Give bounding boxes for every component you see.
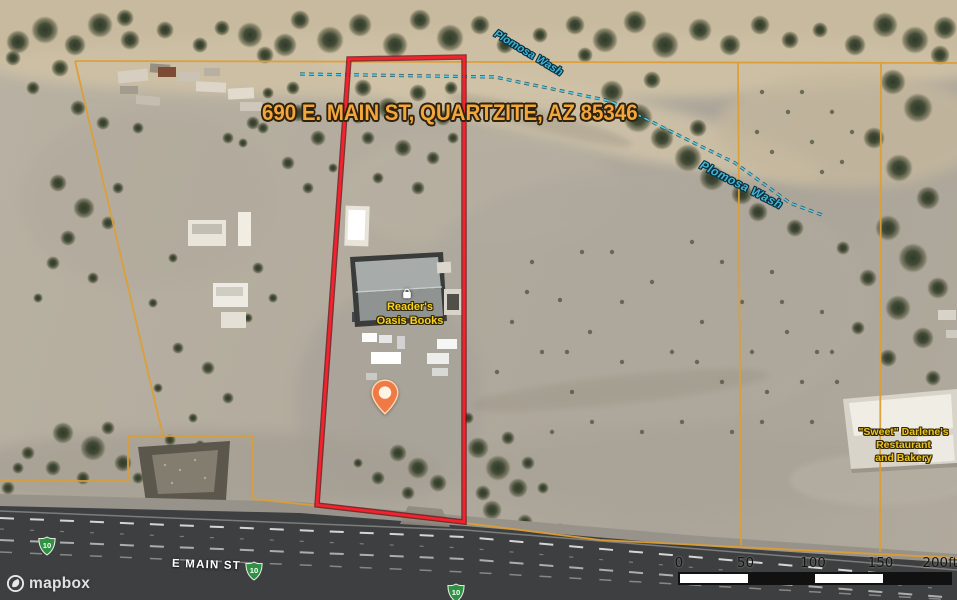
tree — [26, 81, 40, 95]
shrub — [830, 110, 834, 114]
shrub — [820, 310, 824, 314]
location-pin-marker[interactable] — [371, 379, 399, 415]
structure — [196, 81, 226, 93]
restaurant-line2: Restaurant — [851, 439, 956, 452]
gravel-mound — [138, 441, 230, 503]
tree — [281, 156, 295, 170]
tree — [5, 50, 21, 66]
tree — [382, 32, 408, 58]
structure — [437, 339, 457, 349]
tree — [786, 219, 804, 237]
tree — [844, 34, 866, 56]
structure — [371, 352, 401, 364]
structure — [397, 336, 405, 349]
tree — [903, 93, 933, 123]
tree — [252, 262, 264, 274]
tree — [485, 455, 511, 481]
structure — [228, 87, 255, 99]
tree — [6, 30, 30, 54]
tree — [273, 33, 297, 57]
scale-tick-150: 150 — [868, 555, 894, 571]
scale-tick-50: 50 — [737, 555, 754, 571]
tree — [885, 154, 913, 182]
tree — [120, 30, 140, 50]
tree — [444, 81, 458, 95]
shrub — [580, 250, 584, 254]
tree — [238, 138, 248, 148]
structure — [136, 95, 161, 106]
tree — [925, 370, 941, 386]
satellite-map-canvas[interactable] — [0, 0, 957, 600]
route-shield-10-center: 10 — [245, 561, 263, 581]
tree — [80, 435, 106, 461]
shrub — [590, 420, 594, 424]
tree — [930, 45, 950, 65]
shrub — [588, 330, 592, 334]
shrub — [670, 350, 674, 354]
tree — [389, 444, 407, 462]
tree — [872, 12, 898, 38]
shrub — [835, 380, 839, 384]
road-name-label: E MAIN ST — [172, 558, 241, 572]
structure — [427, 353, 449, 364]
shrub — [755, 130, 759, 134]
shrub — [700, 320, 704, 324]
scale-tick-100: 100 — [800, 555, 826, 571]
shrub — [850, 130, 854, 134]
shrub — [495, 370, 499, 374]
tree — [302, 182, 314, 194]
shrub — [770, 270, 774, 274]
shrub — [530, 260, 534, 264]
tree — [912, 327, 934, 349]
tree — [467, 437, 489, 459]
tree — [353, 458, 363, 468]
tree — [623, 10, 647, 34]
structure — [946, 330, 957, 338]
tree — [12, 462, 24, 474]
structure — [120, 86, 138, 94]
tree — [898, 243, 928, 273]
tree — [21, 446, 35, 460]
tree — [222, 132, 234, 144]
shrub — [780, 300, 784, 304]
tree — [201, 361, 215, 375]
structure — [379, 335, 392, 343]
poi-store-line1: Reader's — [364, 300, 456, 314]
tree — [1, 481, 15, 495]
tree — [859, 269, 877, 287]
tree — [436, 24, 464, 52]
tree — [371, 471, 385, 485]
tree — [592, 27, 618, 53]
tree — [409, 9, 431, 31]
tree — [237, 22, 263, 48]
tree — [447, 132, 459, 144]
shrub — [820, 170, 824, 174]
shrub — [525, 290, 529, 294]
tree — [76, 471, 90, 485]
tree — [156, 21, 174, 39]
route-shield-10-right: 10 — [447, 583, 465, 600]
tree — [328, 163, 338, 173]
tree — [879, 349, 897, 367]
structure — [432, 368, 448, 376]
poi-store-line2: Oasis Books — [364, 314, 456, 328]
tree — [429, 474, 447, 492]
structure — [238, 212, 251, 246]
tree — [851, 321, 865, 335]
tree — [51, 59, 69, 77]
structure — [204, 68, 220, 76]
tree — [407, 457, 429, 479]
scale-tick-200ft: 200ft — [922, 555, 957, 571]
scale-segment — [748, 574, 816, 583]
shrub — [650, 280, 654, 284]
tree — [875, 215, 901, 241]
scale-segment — [815, 574, 883, 583]
tree — [901, 26, 929, 54]
mapbox-attribution[interactable]: mapbox — [6, 574, 90, 593]
scale-segment — [680, 574, 748, 583]
structure — [240, 102, 262, 111]
tree — [96, 116, 110, 130]
tree — [286, 81, 300, 95]
poi-store-label: Reader's Oasis Books — [364, 300, 456, 328]
tree — [411, 181, 425, 195]
tree — [719, 34, 741, 56]
tree — [643, 71, 661, 89]
tree — [222, 392, 234, 404]
shop-bag-icon — [401, 288, 413, 300]
shrub — [540, 350, 544, 354]
tree — [577, 47, 593, 63]
tree — [33, 293, 43, 303]
tree — [45, 460, 61, 476]
tree — [354, 79, 372, 97]
tree — [290, 10, 310, 30]
tree — [688, 18, 712, 42]
shrub — [610, 250, 614, 254]
shrub — [810, 420, 814, 424]
tree — [114, 454, 132, 472]
tree — [116, 9, 134, 27]
tree — [246, 116, 260, 130]
tree — [70, 100, 86, 116]
tree — [87, 272, 99, 284]
shrub — [830, 350, 834, 354]
tree — [112, 182, 124, 194]
shrub — [510, 320, 514, 324]
shrub — [730, 430, 734, 434]
tree — [470, 15, 490, 35]
shrub — [720, 380, 724, 384]
tree — [268, 293, 278, 303]
shrub — [640, 430, 644, 434]
structure — [158, 67, 176, 77]
tree — [927, 277, 949, 299]
tree — [262, 87, 274, 99]
shrub — [695, 360, 699, 364]
parcel-line-east-vertical — [880, 63, 881, 552]
tree — [172, 342, 184, 354]
shrub — [750, 350, 754, 354]
tree — [188, 413, 198, 423]
shrub — [570, 390, 574, 394]
shrub — [550, 430, 554, 434]
shrub — [720, 260, 724, 264]
shrub — [760, 90, 764, 94]
tree — [532, 27, 548, 43]
shrub — [785, 330, 789, 334]
tree — [880, 69, 906, 95]
shrub — [800, 90, 804, 94]
tree — [426, 151, 440, 165]
tree — [812, 22, 828, 38]
tree — [394, 139, 412, 157]
scale-segment — [883, 574, 951, 583]
tree — [401, 486, 415, 500]
tree — [521, 456, 535, 470]
shrub — [840, 160, 844, 164]
structure — [347, 210, 365, 241]
address-label: 690 E. MAIN ST, QUARTZITE, AZ 85346 — [262, 100, 638, 126]
tree — [750, 15, 770, 35]
shrub — [620, 360, 624, 364]
tree — [651, 31, 679, 59]
shrub — [740, 300, 744, 304]
tree — [214, 20, 230, 36]
route-number: 10 — [250, 566, 258, 575]
tree — [316, 26, 344, 54]
shrub — [565, 350, 569, 354]
tree — [781, 31, 799, 49]
tree — [361, 131, 375, 145]
tree — [60, 230, 76, 246]
tree — [482, 500, 502, 520]
tree — [31, 16, 59, 44]
scale-tick-0: 0 — [675, 555, 684, 571]
satellite-map-viewport[interactable]: 690 E. MAIN ST, QUARTZITE, AZ 85346 Plom… — [0, 0, 957, 600]
structure — [221, 312, 246, 328]
restaurant-line3: and Bakery — [851, 452, 956, 465]
shrub — [810, 140, 814, 144]
shrub — [770, 150, 774, 154]
shrub — [620, 300, 624, 304]
shrub — [760, 420, 764, 424]
tree — [87, 12, 113, 38]
tree — [933, 16, 957, 40]
tree — [52, 422, 74, 444]
tree — [885, 295, 911, 321]
tree — [508, 478, 528, 498]
shrub — [680, 420, 684, 424]
structure — [362, 333, 377, 342]
tree — [689, 119, 707, 137]
structure — [178, 72, 200, 81]
scale-bar-segments — [678, 572, 952, 585]
tree — [310, 130, 326, 146]
tree — [192, 37, 208, 53]
tree — [49, 174, 67, 192]
tree — [501, 431, 515, 445]
shrub — [800, 380, 804, 384]
tree — [132, 122, 144, 134]
shrub — [815, 350, 819, 354]
tree — [168, 253, 178, 263]
route-number: 10 — [43, 541, 51, 550]
tree — [372, 172, 384, 184]
mapbox-logo-icon — [6, 574, 25, 593]
tree — [475, 485, 491, 501]
tree — [348, 13, 372, 37]
structure — [938, 310, 956, 320]
route-shield-10-left: 10 — [38, 536, 56, 556]
structure — [192, 224, 222, 234]
tree — [565, 15, 585, 35]
shrub — [765, 390, 769, 394]
tree — [916, 186, 940, 210]
tree — [537, 482, 549, 494]
shrub — [786, 110, 790, 114]
restaurant-label: "Sweet" Darlene's Restaurant and Bakery — [851, 426, 956, 465]
scale-bar: 0 50 100 150 200ft — [676, 555, 954, 585]
route-number: 10 — [452, 588, 460, 597]
tree — [153, 383, 163, 393]
tree — [64, 34, 86, 56]
tree — [73, 197, 95, 219]
tree — [148, 298, 158, 308]
restaurant-line1: "Sweet" Darlene's — [851, 426, 956, 439]
shrub — [690, 240, 694, 244]
tree — [46, 256, 60, 270]
tree — [836, 241, 850, 255]
mapbox-logo-text: mapbox — [29, 575, 90, 593]
tree — [101, 421, 115, 435]
structure — [216, 287, 243, 296]
shrub — [558, 298, 562, 302]
